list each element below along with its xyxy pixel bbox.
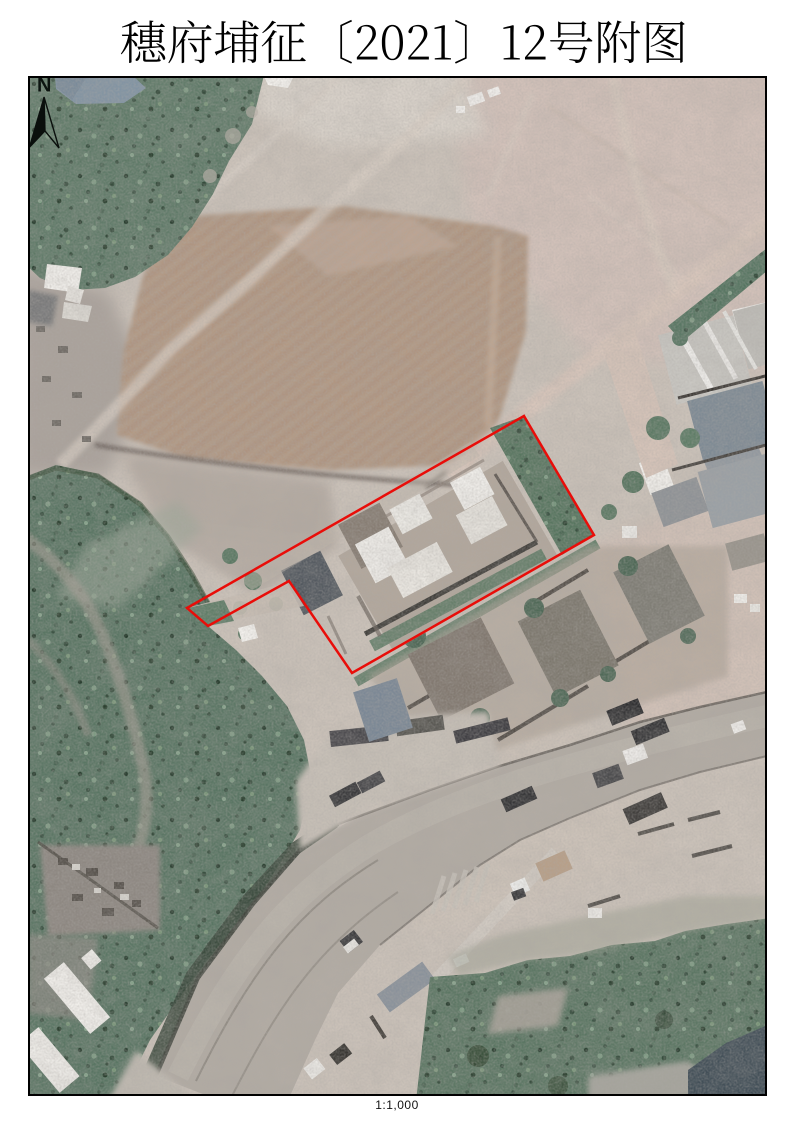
svg-text:N: N	[37, 76, 51, 97]
